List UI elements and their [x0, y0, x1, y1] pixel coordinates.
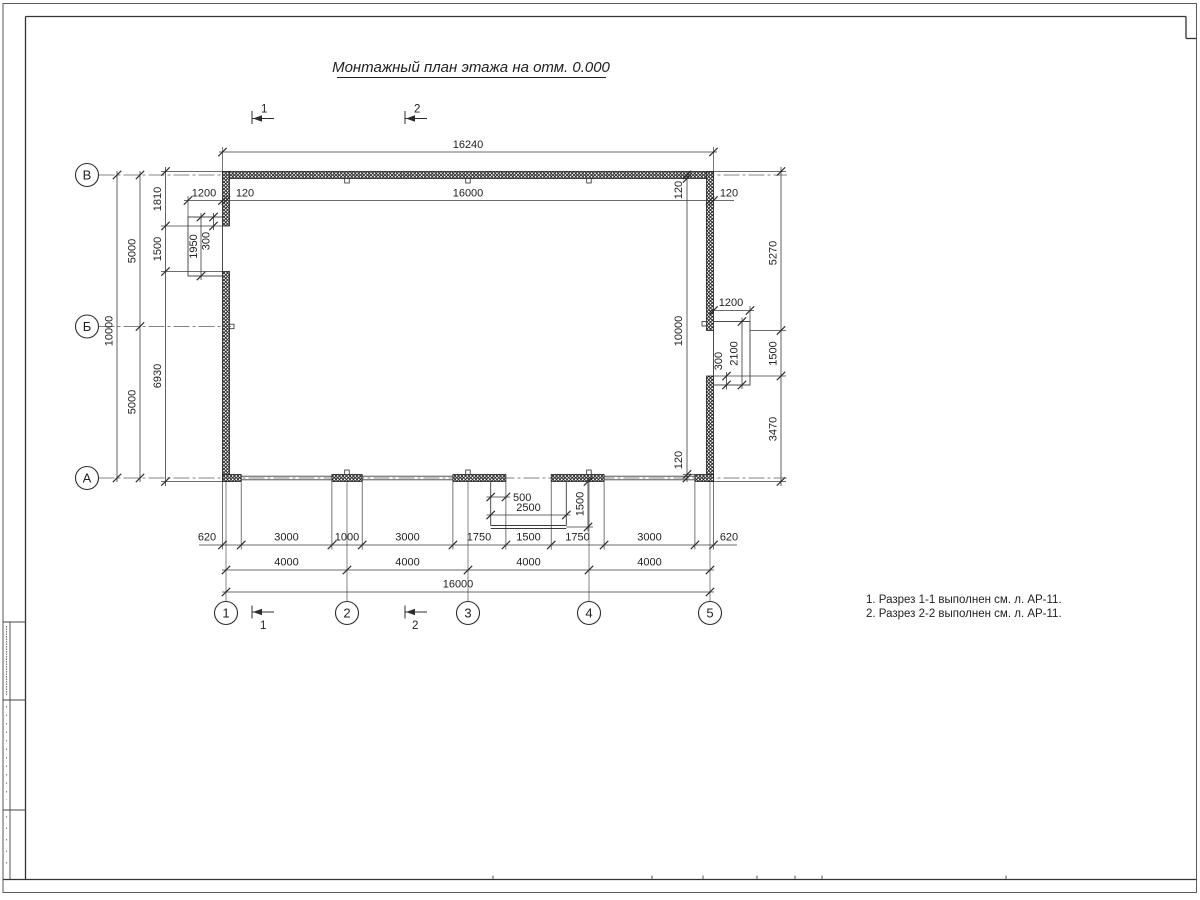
dim-bottom-chain-5: 1750	[467, 532, 491, 544]
dim-bottom-overall: 16000	[443, 579, 474, 591]
dim-bottom-porch-depth: 1500	[575, 492, 587, 516]
axis-label-a: А	[83, 471, 92, 486]
dim-left-porch-length: 1950	[188, 234, 200, 258]
dim-right-inner-height: 10000	[673, 316, 685, 347]
outer-border	[3, 4, 1197, 893]
section-mark-top-2: 2	[405, 104, 427, 125]
dim-left-half-1: 5000	[127, 239, 139, 263]
notes: 1. Разрез 1-1 выполнен см. л. АР-11. 2. …	[866, 594, 1062, 620]
note-line-2: 2. Разрез 2-2 выполнен см. л. АР-11.	[866, 608, 1062, 620]
dim-bottom-porch-width: 2500	[516, 502, 540, 514]
dim-right-porch-offset: 300	[713, 352, 725, 370]
section-marks: 1 2 1 2	[252, 104, 427, 633]
dim-120-left: 120	[236, 188, 254, 200]
dim-bottom-chain-4: 3000	[395, 532, 419, 544]
drawing-canvas: Монтажный план этажа на отм. 0.000	[0, 0, 1200, 900]
dim-left-chain-1: 1810	[152, 187, 164, 211]
dimension-labels: 16240 1200 120 16000 120 120 10000 120 1…	[104, 139, 780, 591]
dim-left-chain-3: 6930	[152, 364, 164, 388]
drawing-title: Монтажный план этажа на отм. 0.000	[332, 59, 610, 76]
dimension-lines	[117, 152, 781, 592]
dim-span-2: 4000	[395, 557, 419, 569]
axis-label-3: 3	[464, 606, 471, 621]
wall-right-lower	[707, 376, 714, 482]
note-line-1: 1. Разрез 1-1 выполнен см. л. АР-11.	[866, 594, 1062, 606]
section-mark-bottom-1: 1	[252, 606, 274, 633]
dim-left-outer: 10000	[104, 316, 116, 347]
section-mark-top-1: 1	[252, 104, 274, 125]
dim-bottom-chain-8: 3000	[637, 532, 661, 544]
dim-bottom-chain-3: 1000	[335, 532, 359, 544]
dim-left-chain-2: 1500	[152, 237, 164, 261]
dim-left-half-2: 5000	[127, 390, 139, 414]
dim-120-right: 120	[720, 188, 738, 200]
section-mark-bottom-2: 2	[405, 606, 427, 633]
dim-bottom-chain-7: 1750	[565, 532, 589, 544]
dim-bottom-chain-2: 3000	[274, 532, 298, 544]
dim-span-3: 4000	[516, 557, 540, 569]
column-marks	[230, 179, 707, 475]
dim-bottom-chain-9: 620	[720, 532, 738, 544]
axis-label-2: 2	[343, 606, 350, 621]
dim-bottom-chain-1: 620	[198, 532, 216, 544]
section-number: 2	[414, 104, 420, 116]
axis-label-b: Б	[83, 319, 92, 334]
section-number: 1	[261, 104, 267, 116]
axis-bubbles	[76, 164, 722, 625]
sheet-frame	[3, 4, 1197, 893]
left-stamp-strip	[3, 622, 26, 880]
dim-inner-width: 16000	[453, 188, 484, 200]
dim-left-porch-width: 1200	[192, 188, 216, 200]
dim-right-porch-length: 2100	[729, 341, 741, 365]
dim-right-chain-1: 5270	[768, 241, 780, 265]
dim-left-porch-offset: 300	[201, 232, 213, 250]
axis-label-1: 1	[222, 606, 229, 621]
dim-right-chain-2: 1500	[768, 341, 780, 365]
dim-top-overall: 16240	[453, 139, 484, 151]
main-frame	[3, 17, 1197, 880]
extension-lines	[161, 147, 786, 550]
dim-bottom-chain-6: 1500	[516, 532, 540, 544]
wall-right-upper	[707, 172, 714, 331]
dim-span-4: 4000	[637, 557, 661, 569]
axis-label-4: 4	[585, 606, 592, 621]
dim-right-chain-3: 3470	[768, 417, 780, 441]
dim-120-topright-vert: 120	[673, 181, 685, 199]
section-number: 2	[412, 620, 418, 632]
walls	[223, 172, 714, 482]
dim-120-bottomright-vert: 120	[673, 451, 685, 469]
section-number: 1	[260, 620, 266, 632]
axis-label-5: 5	[706, 606, 713, 621]
drawing-sheet: Монтажный план этажа на отм. 0.000	[0, 0, 1200, 900]
axis-label-v: В	[83, 168, 92, 183]
dim-span-1: 4000	[274, 557, 298, 569]
wall-left-lower	[223, 272, 230, 482]
axis-bubble-labels: В Б А 1 2 3 4 5	[83, 168, 714, 621]
dim-right-porch-width: 1200	[719, 297, 743, 309]
